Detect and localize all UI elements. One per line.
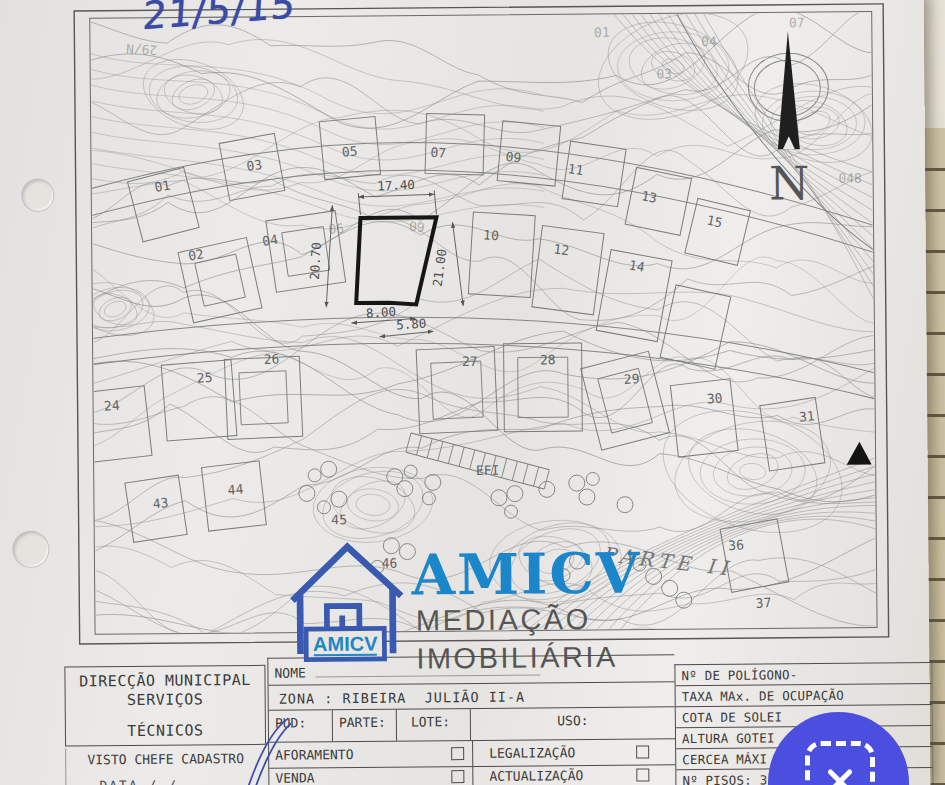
- aforamento-field: AFORAMENTO: [269, 741, 473, 768]
- actualizacao-label: ACTUALIZAÇÃO: [489, 768, 583, 784]
- house-left-wall: [300, 595, 301, 654]
- legalizacao-field: LEGALIZAÇÃO: [473, 739, 675, 766]
- house-right-wall: [392, 588, 393, 653]
- watermark-tagline-2: IMOBILIÁRIA: [416, 641, 618, 676]
- amicv-house-logo: AMICV: [284, 539, 409, 664]
- venda-field: VENDA: [269, 767, 473, 785]
- venda-label: VENDA: [275, 770, 314, 785]
- lote-cell: LOTE:: [397, 709, 471, 741]
- department-line1: DIRECÇÃO MUNICIPAL: [65, 671, 264, 692]
- data-label: DATA: [99, 778, 138, 785]
- dashed-box-x-icon: [805, 741, 875, 785]
- department-line2: SERVIÇOS: [66, 690, 265, 711]
- check-row-2: VENDA ACTUALIZAÇÃO: [269, 765, 675, 785]
- checkbox-actualizacao: [636, 768, 649, 781]
- actualizacao-field: ACTUALIZAÇÃO: [473, 765, 675, 785]
- pud-parte-lote-uso-row: PUD: PARTE: LOTE: USO:: [269, 707, 675, 743]
- document-content: 17.40 20.70 21.00 8.00 5.80 N PARTE II E…: [0, 0, 945, 785]
- data-slashes: / /: [148, 778, 178, 785]
- pud-cell: PUD:: [269, 710, 333, 742]
- watermark-tagline-1: MEDIAÇÃO: [416, 603, 591, 638]
- logo-text: AMICV: [313, 632, 378, 655]
- uso-cell: USO:: [471, 707, 675, 740]
- data-row: DATA / /: [99, 778, 178, 785]
- zona-row: ZONA : RIBEIRA JULIÃO II-A: [269, 682, 675, 711]
- checkbox-aforamento: [451, 747, 464, 760]
- taxa-ocupacao-row: TAXA MAx. DE OCUPAÇÃO: [676, 684, 932, 707]
- poligono-row: Nº DE POLÍGONO-: [675, 663, 931, 686]
- aforamento-label: AFORAMENTO: [275, 747, 353, 763]
- department-line3: TÉCNICOS: [66, 721, 265, 742]
- checkbox-legalizacao: [636, 745, 649, 758]
- check-row-1: AFORAMENTO LEGALIZAÇÃO: [269, 739, 675, 769]
- department-box: DIRECÇÃO MUNICIPAL SERVIÇOS TÉCNICOS: [64, 665, 266, 747]
- legalizacao-label: LEGALIZAÇÃO: [489, 745, 575, 761]
- house-roof: [292, 546, 401, 600]
- checkbox-venda: [451, 770, 464, 783]
- nome-label: NOME: [274, 665, 305, 680]
- visto-label: VISTO CHEFE CADASTRO: [65, 751, 266, 768]
- parte-cell: PARTE:: [333, 710, 397, 742]
- watermark-brand: AMICV: [411, 540, 641, 608]
